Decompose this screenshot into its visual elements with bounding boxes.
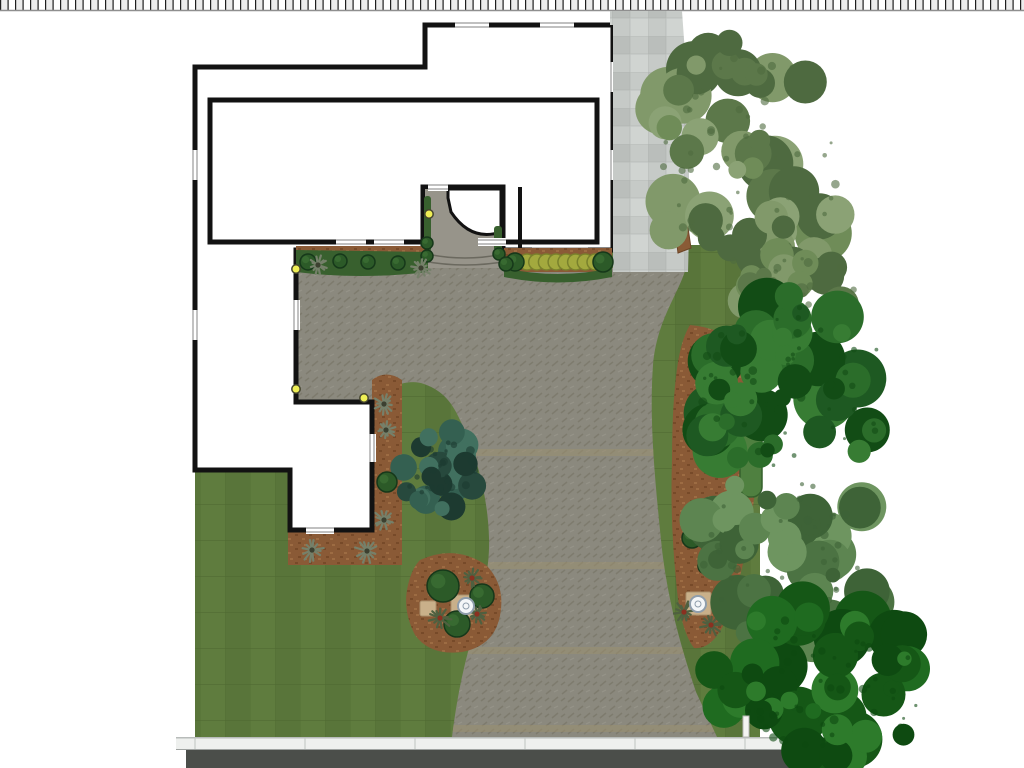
shrub[interactable]: [593, 252, 613, 272]
window-mark: [478, 238, 506, 246]
shrub-highlight: [423, 239, 428, 244]
tree-upper-right-leaf-speckle: [719, 67, 722, 70]
tree-bottom-dark-leaf-speckle: [897, 724, 903, 730]
plant-center: [383, 427, 388, 432]
tree-bottom-dark-leaf-speckle: [819, 679, 823, 683]
tree-lower-right-sage-leaf-speckle: [796, 496, 802, 502]
window-gap: [191, 150, 199, 180]
tree-mid-right-dark-leaf-speckle: [875, 348, 879, 352]
tree-mid-right-dark-leaf-speckle: [818, 327, 823, 332]
tree-mid-right-dark-leaf-speckle: [851, 347, 857, 353]
juniper-shrub-leaf-speckle: [428, 446, 434, 452]
window-gap: [455, 21, 489, 29]
tree-bottom-dark-leaf-speckle: [870, 709, 877, 716]
tree-mid-right-dark-leaf-speckle: [764, 402, 768, 406]
tree-mid-right-dark-leaf-speckle: [718, 332, 724, 338]
window-mark: [336, 238, 366, 246]
tree-bottom-dark-leaf-speckle: [822, 738, 826, 742]
tree-lower-right-sage-leaf-speckle: [746, 583, 749, 586]
tree-mid-right-dark-leaf-speckle: [840, 352, 844, 356]
tree-mid-right-dark-leaf-speckle: [827, 381, 835, 389]
tree-mid-right-dark-leaf-speckle: [703, 352, 711, 360]
tree-bottom-dark-leaf-speckle: [820, 722, 825, 727]
tree-lower-right-sage-leaf-speckle: [841, 510, 849, 518]
tree-mid-right-dark-leaf-speckle: [797, 393, 806, 402]
tree-upper-right-leaf-speckle: [831, 180, 840, 189]
tree-right-lobe-leaf-speckle: [773, 264, 781, 272]
tree-mid-right-dark-leaf-speckle: [749, 366, 758, 375]
shrub[interactable]: [427, 570, 459, 602]
tree-upper-right-foliage: [698, 224, 725, 251]
tree-mid-right-dark-leaf-speckle: [742, 422, 748, 428]
streetscape: [176, 737, 843, 768]
window-gap: [292, 300, 300, 330]
window-gap: [478, 238, 506, 246]
shrub-highlight: [335, 256, 341, 262]
juniper-shrub-leaf-speckle: [414, 474, 419, 479]
tree-bottom-dark-leaf-speckle: [890, 688, 896, 694]
tree-mid-right-dark-leaf-speckle: [797, 346, 801, 350]
tree-bottom-dark-leaf-speckle: [818, 647, 825, 654]
tree-upper-right-leaf-speckle: [809, 195, 814, 200]
tree-bottom-dark-leaf-speckle: [781, 616, 789, 624]
tree-bottom-dark-leaf-speckle: [865, 643, 874, 652]
tree-lower-right-sage-leaf-speckle: [719, 597, 724, 602]
tree-mid-right-dark-leaf-speckle: [785, 357, 791, 363]
tree-bottom-dark-leaf-speckle: [830, 715, 839, 724]
tree-mid-right-dark-leaf-speckle: [772, 463, 776, 467]
plant-center: [474, 611, 479, 616]
tree-lower-right-sage-leaf-speckle: [700, 561, 708, 569]
tree-mid-right-dark-leaf-speckle: [755, 448, 763, 456]
shrub-highlight: [423, 252, 428, 257]
tree-upper-right-leaf-speckle: [786, 194, 792, 200]
tree-lower-right-sage-foliage: [773, 493, 800, 520]
shrub-highlight: [380, 475, 389, 484]
tree-bottom-dark-leaf-speckle: [867, 684, 871, 688]
tree-bottom-dark-leaf-speckle: [855, 639, 860, 644]
tree-bottom-dark-foliage: [746, 682, 766, 702]
window-mark: [191, 310, 199, 340]
street[interactable]: [186, 750, 843, 768]
plant-center: [315, 262, 320, 267]
tree-bottom-dark-leaf-speckle: [791, 650, 797, 656]
tree-upper-right-leaf-speckle: [774, 156, 778, 160]
window-mark: [292, 300, 300, 330]
tree-mid-right-dark-leaf-speckle: [713, 415, 720, 422]
tree-upper-right-leaf-speckle: [822, 153, 827, 158]
tree-upper-right-foliage: [816, 195, 854, 233]
juniper-shrub-leaf-speckle: [449, 495, 453, 499]
tree-mid-right-dark-leaf-speckle: [831, 426, 835, 430]
tree-lower-right-sage-leaf-speckle: [741, 546, 746, 551]
tree-right-lobe-leaf-speckle: [837, 264, 845, 272]
tree-lower-right-sage-leaf-speckle: [821, 547, 825, 551]
tree-upper-right-leaf-speckle: [688, 225, 695, 232]
tree-upper-right-leaf-speckle: [779, 230, 782, 233]
shrub-highlight: [431, 574, 445, 588]
tree-bottom-dark-leaf-speckle: [846, 663, 851, 668]
tree-lower-right-sage-leaf-speckle: [835, 542, 842, 549]
tree-bottom-dark-leaf-speckle: [873, 677, 878, 682]
tree-bottom-dark-foliage: [849, 720, 882, 753]
tree-upper-right-leaf-speckle: [790, 65, 794, 69]
plant-center: [381, 401, 386, 406]
plant-center: [437, 615, 442, 620]
tree-bottom-dark-leaf-speckle: [769, 733, 777, 741]
tree-right-lobe-leaf-speckle: [783, 259, 787, 263]
tree-mid-right-dark-leaf-speckle: [729, 343, 734, 348]
tree-upper-right-leaf-speckle: [740, 237, 744, 241]
tree-upper-right-leaf-speckle: [698, 88, 705, 95]
tree-lower-right-sage-leaf-speckle: [780, 576, 784, 580]
tree-mid-right-dark-leaf-speckle: [713, 352, 722, 361]
tree-upper-right-leaf-speckle: [688, 167, 694, 173]
shrub-highlight: [596, 255, 605, 264]
plant-center: [418, 265, 423, 270]
tree-mid-right-dark-leaf-speckle: [796, 315, 801, 320]
shrub-highlight: [501, 259, 507, 265]
tree-bottom-dark-leaf-speckle: [892, 697, 896, 701]
window-gap: [428, 183, 448, 191]
tree-mid-right-dark-leaf-speckle: [774, 406, 782, 414]
birdbath[interactable]: [690, 596, 706, 612]
tree-upper-right-leaf-speckle: [829, 196, 834, 201]
landscape-plan-canvas: [0, 0, 1024, 768]
tree-lower-right-sage-leaf-speckle: [832, 557, 837, 562]
tree-bottom-dark-leaf-speckle: [811, 654, 815, 658]
tree-mid-right-dark-leaf-speckle: [792, 453, 797, 458]
tree-lower-right-sage-leaf-speckle: [716, 548, 722, 554]
tree-bottom-dark-leaf-speckle: [827, 684, 834, 691]
juniper-shrub-foliage: [435, 501, 450, 516]
tree-mid-right-dark-foliage: [727, 447, 749, 469]
tree-lower-right-sage-foliage: [826, 568, 841, 583]
window-gap: [191, 310, 199, 340]
juniper-shrub-leaf-speckle: [407, 484, 412, 489]
tree-lower-right-sage-foliage: [725, 476, 744, 495]
tree-bottom-dark-foliage: [747, 612, 766, 631]
tree-lower-right-sage-leaf-speckle: [779, 519, 783, 523]
tree-upper-right-leaf-speckle: [736, 191, 740, 195]
tree-bottom-dark-leaf-speckle: [779, 668, 785, 674]
tree-upper-right-leaf-speckle: [713, 163, 720, 170]
tree-lower-right-sage-leaf-speckle: [821, 559, 827, 565]
tree-mid-right-dark-leaf-speckle: [793, 329, 802, 338]
shrub-highlight: [393, 258, 399, 264]
window-gap: [368, 434, 376, 462]
tree-upper-right-leaf-speckle: [830, 141, 833, 144]
tree-bottom-dark-leaf-speckle: [906, 655, 911, 660]
tree-mid-right-dark-leaf-speckle: [734, 362, 738, 366]
tree-upper-right-foliage: [670, 134, 705, 169]
shrub[interactable]: [421, 237, 433, 249]
tree-upper-right-leaf-speckle: [692, 93, 699, 100]
juniper-shrub-leaf-speckle: [445, 474, 449, 478]
tree-bottom-dark-leaf-speckle: [762, 725, 770, 733]
window-gap: [336, 238, 366, 246]
tree-upper-right-leaf-speckle: [679, 167, 686, 174]
tree-upper-right-leaf-speckle: [760, 123, 766, 129]
tree-bottom-dark-leaf-speckle: [902, 717, 905, 720]
tree-bottom-dark-leaf-speckle: [773, 636, 778, 641]
tree-mid-right-dark-leaf-speckle: [714, 376, 718, 380]
juniper-shrub-leaf-speckle: [437, 484, 444, 491]
tree-mid-right-dark-leaf-speckle: [849, 383, 855, 389]
tree-lower-right-sage-foliage: [771, 535, 792, 556]
tree-lower-right-sage-leaf-speckle: [820, 531, 829, 540]
window-gap: [306, 526, 334, 534]
window-mark: [455, 21, 489, 29]
tree-bottom-dark-leaf-speckle: [757, 715, 764, 722]
tree-lower-right-sage-leaf-speckle: [830, 514, 836, 520]
tree-lower-right-sage-foliage: [839, 487, 881, 529]
juniper-shrub-leaf-speckle: [462, 453, 465, 456]
tree-bottom-dark-leaf-speckle: [859, 685, 868, 694]
tree-upper-right-leaf-speckle: [815, 91, 819, 95]
window-gap: [540, 21, 574, 29]
tree-bottom-dark-leaf-speckle: [747, 709, 751, 713]
tree-upper-right-foliage: [772, 216, 795, 239]
window-mark: [191, 150, 199, 180]
landscape-light[interactable]: [425, 210, 433, 218]
tree-upper-right-leaf-speckle: [761, 97, 769, 105]
tree-bottom-dark-leaf-speckle: [802, 741, 809, 748]
tree-upper-right-leaf-speckle: [822, 212, 827, 217]
tree-lower-right-sage-leaf-speckle: [834, 587, 838, 591]
tree-mid-right-dark-foliage: [848, 440, 871, 463]
tree-lower-right-sage-leaf-speckle: [827, 524, 830, 527]
juniper-shrub-leaf-speckle: [428, 485, 435, 492]
tree-mid-right-dark-foliage: [718, 414, 734, 430]
tree-lower-right-sage-foliage: [758, 491, 777, 510]
tree-mid-right-dark-foliage: [724, 392, 740, 408]
landscape-light[interactable]: [292, 265, 300, 273]
tree-bottom-dark-leaf-speckle: [756, 708, 764, 716]
juniper-shrub-leaf-speckle: [444, 479, 449, 484]
tree-mid-right-dark-leaf-speckle: [791, 357, 795, 361]
tree-lower-right-sage-leaf-speckle: [733, 565, 741, 573]
tree-bottom-dark-foliage: [742, 664, 763, 685]
tree-mid-right-dark-leaf-speckle: [784, 377, 788, 381]
tree-bottom-dark-leaf-speckle: [820, 743, 825, 748]
tree-upper-right-leaf-speckle: [768, 62, 776, 70]
tree-lower-right-sage-leaf-speckle: [729, 575, 734, 580]
tree-lower-right-sage-leaf-speckle: [800, 482, 804, 486]
tree-lower-right-sage-leaf-speckle: [709, 532, 715, 538]
tree-mid-right-dark-foliage: [823, 378, 845, 400]
tree-lower-right-sage-leaf-speckle: [722, 504, 726, 508]
birdbath[interactable]: [458, 598, 474, 614]
shrub-highlight: [473, 587, 484, 598]
tree-bottom-dark-leaf-speckle: [830, 733, 835, 738]
tree-upper-right-leaf-speckle: [736, 106, 743, 113]
window-mark: [374, 238, 404, 246]
juniper-shrub-leaf-speckle: [451, 442, 458, 449]
plant-center: [364, 548, 369, 553]
birdbath-basin: [690, 596, 706, 612]
tree-bottom-dark-leaf-speckle: [779, 736, 788, 745]
tree-upper-right-leaf-speckle: [743, 133, 749, 139]
sidewalk[interactable]: [176, 737, 843, 750]
tree-mid-right-dark-leaf-speckle: [698, 397, 707, 406]
tree-bottom-dark-leaf-speckle: [860, 641, 865, 646]
tree-mid-right-dark-foliage: [760, 443, 774, 457]
tree-upper-right-leaf-speckle: [723, 156, 729, 162]
tree-mid-right-dark-leaf-speckle: [843, 437, 846, 440]
mailbox-post[interactable]: [743, 716, 749, 737]
tree-upper-right-leaf-speckle: [726, 224, 733, 231]
tree-right-lobe-leaf-speckle: [807, 282, 815, 290]
window-mark: [368, 434, 376, 462]
tree-upper-right-foliage: [657, 115, 682, 140]
tree-upper-right-leaf-speckle: [681, 177, 687, 183]
tree-upper-right-leaf-speckle: [730, 54, 738, 62]
juniper-shrub-leaf-speckle: [425, 486, 428, 489]
tree-bottom-dark-leaf-speckle: [796, 706, 803, 713]
juniper-shrub-leaf-speckle: [466, 446, 475, 455]
boxwood-hedge-row[interactable]: [519, 254, 603, 270]
tree-bottom-dark-leaf-speckle: [774, 628, 780, 634]
tree-upper-right-leaf-speckle: [794, 151, 800, 157]
tree-upper-right-leaf-speckle: [687, 217, 695, 225]
shrub[interactable]: [499, 257, 513, 271]
plant-center: [708, 622, 713, 627]
tree-upper-right-leaf-speckle: [774, 208, 779, 213]
juniper-shrub-leaf-speckle: [430, 467, 437, 474]
tree-bottom-dark-leaf-speckle: [790, 636, 798, 644]
tree-upper-right-leaf-speckle: [730, 257, 737, 264]
tree-mid-right-dark-leaf-speckle: [750, 378, 757, 385]
juniper-shrub-leaf-speckle: [446, 440, 451, 445]
shrub[interactable]: [361, 255, 375, 269]
tree-mid-right-dark-foliage: [773, 389, 791, 407]
tree-bottom-dark-leaf-speckle: [812, 634, 816, 638]
tree-right-lobe-leaf-speckle: [804, 258, 813, 267]
plant-center: [309, 547, 314, 552]
scale-strip-ticks: [0, 0, 1024, 10]
tree-mid-right-dark-leaf-speckle: [871, 421, 876, 426]
plant-center: [381, 517, 386, 522]
tree-mid-right-dark-foliage: [774, 328, 792, 346]
tree-mid-right-dark-leaf-speckle: [872, 428, 878, 434]
tree-bottom-dark-leaf-speckle: [836, 685, 844, 693]
shrub-highlight: [302, 256, 309, 263]
tree-bottom-dark-foliage: [794, 603, 823, 632]
tree-mid-right-dark-leaf-speckle: [786, 363, 790, 367]
tree-lower-right-sage-leaf-speckle: [804, 516, 813, 525]
juniper-shrub-leaf-speckle: [448, 483, 456, 491]
tree-mid-right-dark-foliage: [803, 416, 836, 449]
birdbath-basin: [458, 598, 474, 614]
tree-bottom-dark-leaf-speckle: [775, 712, 780, 717]
tree-mid-right-dark-leaf-speckle: [776, 318, 779, 321]
juniper-shrub-leaf-speckle: [444, 449, 447, 452]
shrub-highlight: [363, 257, 369, 263]
tree-mid-right-dark-leaf-speckle: [797, 305, 802, 310]
tree-lower-right-sage-foliage: [713, 508, 737, 532]
juniper-shrub-leaf-speckle: [472, 468, 478, 474]
tree-upper-right-leaf-speckle: [726, 207, 732, 213]
tree-lower-right-sage-leaf-speckle: [810, 484, 815, 489]
tree-mid-right-dark-leaf-speckle: [783, 431, 787, 435]
tree-mid-right-dark-foliage: [833, 324, 851, 342]
tree-mid-right-dark-leaf-speckle: [709, 373, 714, 378]
tree-upper-right-foliage: [716, 30, 742, 56]
juniper-shrub-leaf-speckle: [438, 464, 442, 468]
tree-upper-right-leaf-speckle: [664, 140, 669, 145]
tree-upper-right-foliage: [663, 75, 694, 106]
tree-upper-right-leaf-speckle: [660, 163, 667, 170]
tree-upper-right-leaf-speckle: [677, 203, 681, 207]
tree-mid-right-dark-leaf-speckle: [749, 399, 754, 404]
tree-bottom-dark-leaf-speckle: [854, 650, 857, 653]
scale-strip: [0, 0, 1024, 11]
tree-upper-right-leaf-speckle: [687, 107, 693, 113]
tree-upper-right-leaf-speckle: [746, 115, 750, 119]
tree-upper-right-foliage: [687, 56, 706, 75]
tree-upper-right-foliage: [728, 161, 746, 179]
tree-mid-right-dark-leaf-speckle: [852, 407, 857, 412]
tree-bottom-dark-leaf-speckle: [784, 658, 792, 666]
tree-upper-right-leaf-speckle: [679, 223, 687, 231]
shrub[interactable]: [391, 256, 405, 270]
landscape-light[interactable]: [360, 394, 368, 402]
shrub[interactable]: [377, 472, 397, 492]
tree-mid-right-dark-leaf-speckle: [703, 377, 706, 380]
juniper-shrub-leaf-speckle: [420, 490, 425, 495]
juniper-shrub-leaf-speckle: [462, 481, 470, 489]
tree-lower-right-sage-leaf-speckle: [766, 569, 770, 573]
juniper-shrub-leaf-speckle: [468, 457, 476, 465]
window-mark: [540, 21, 574, 29]
tree-mid-right-dark-leaf-speckle: [842, 370, 848, 376]
juniper-shrub-foliage: [439, 419, 465, 445]
window-gap: [374, 238, 404, 246]
juniper-shrub-leaf-speckle: [433, 452, 438, 457]
tree-bottom-dark-leaf-speckle: [720, 685, 725, 690]
landscape-light[interactable]: [292, 385, 300, 393]
tree-right-lobe-leaf-speckle: [850, 287, 856, 293]
tree-mid-right-dark-leaf-speckle: [730, 369, 737, 376]
tree-lower-right-sage-leaf-speckle: [813, 525, 817, 529]
tree-bottom-dark-foliage: [805, 703, 821, 719]
tree-upper-right-leaf-speckle: [707, 128, 715, 136]
tree-mid-right-dark-leaf-speckle: [744, 374, 750, 380]
tree-upper-right-foliage: [745, 63, 768, 86]
tree-right-lobe-leaf-speckle: [801, 257, 804, 260]
juniper-shrub-foliage: [409, 491, 428, 510]
tree-mid-right-dark-leaf-speckle: [791, 353, 795, 357]
shrub[interactable]: [333, 254, 347, 268]
tree-bottom-dark-leaf-speckle: [914, 704, 917, 707]
window-mark: [306, 526, 334, 534]
juniper-shrub-foliage: [420, 428, 438, 446]
plant-center: [681, 609, 686, 614]
tree-mid-right-dark-leaf-speckle: [739, 330, 745, 336]
plant-center: [469, 575, 474, 580]
tree-upper-right-foliage: [749, 130, 771, 152]
tree-bottom-dark-leaf-speckle: [833, 656, 837, 660]
shrub-highlight: [495, 250, 500, 255]
tree-upper-right-leaf-speckle: [757, 67, 765, 75]
tree-lower-right-sage-leaf-speckle: [855, 566, 860, 571]
tree-upper-right-leaf-speckle: [688, 150, 693, 155]
window-mark: [428, 183, 448, 191]
tree-mid-right-dark-leaf-speckle: [827, 407, 831, 411]
